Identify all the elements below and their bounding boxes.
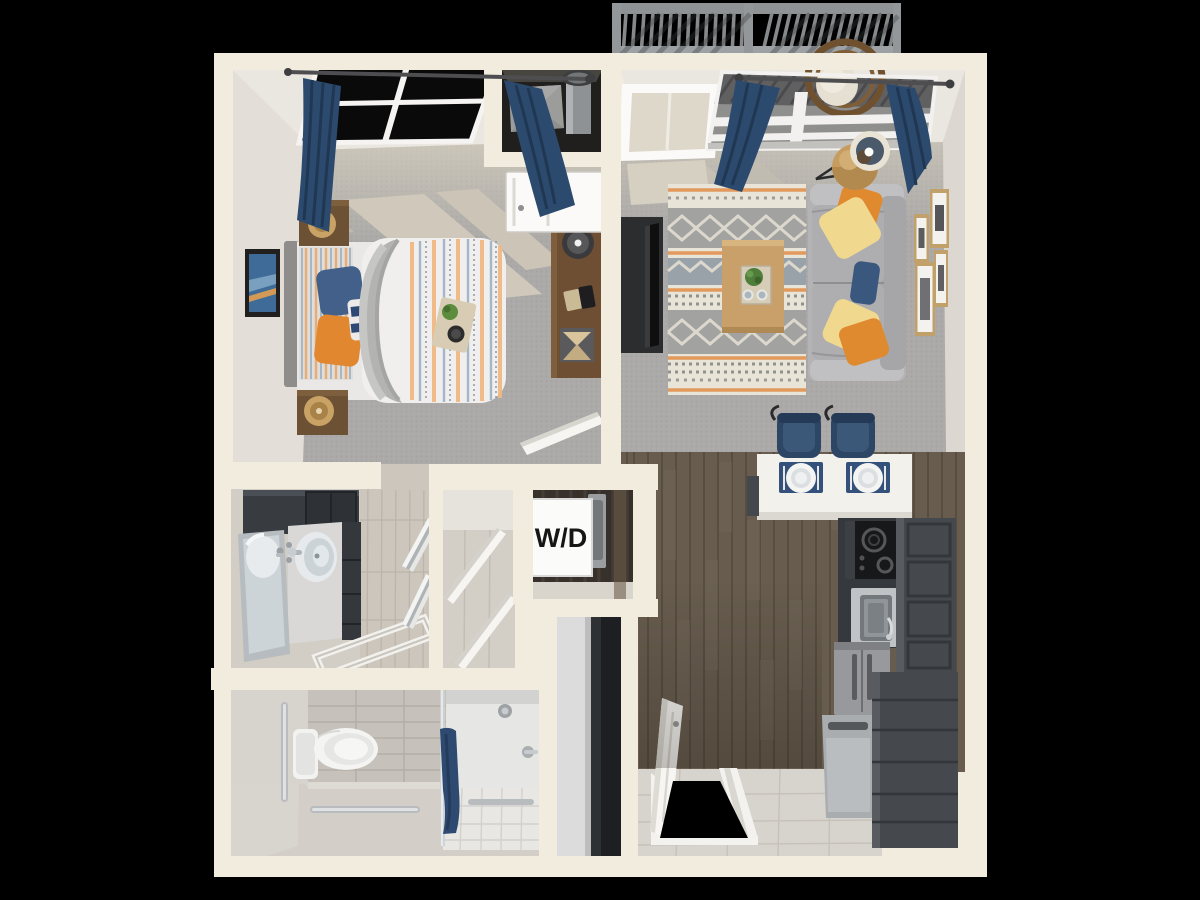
svg-text:W/D: W/D	[535, 523, 587, 553]
